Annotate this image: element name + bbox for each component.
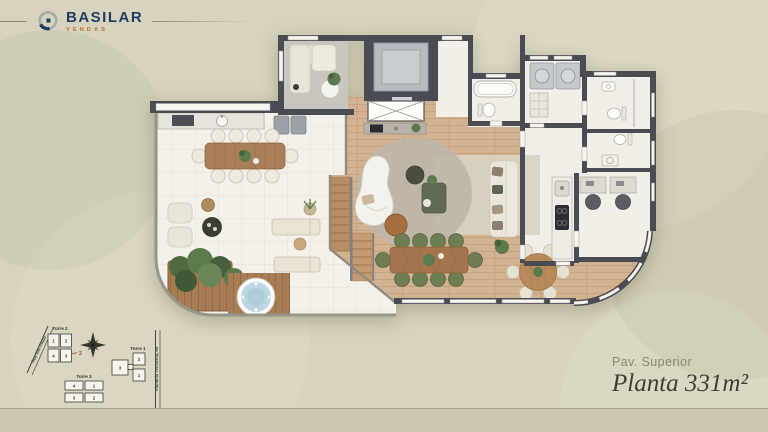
compass-rose-icon <box>80 332 106 358</box>
living-sofa <box>490 161 518 237</box>
office-chair <box>616 195 631 210</box>
page: BASILAR VENDAS <box>0 0 768 432</box>
street-alameda-terracota: Alameda Terracota, 65 <box>154 330 160 408</box>
decorative-rule-left <box>0 21 27 22</box>
tower-name: Torre 1 <box>130 346 146 351</box>
elevator <box>364 35 438 101</box>
kitchen <box>552 177 572 259</box>
plan-title-block: Pav. Superior Planta 331m² <box>612 355 748 398</box>
grill <box>172 115 194 126</box>
plant <box>427 175 437 185</box>
toilet <box>478 103 495 117</box>
pouf <box>385 214 407 236</box>
office-chair <box>586 195 601 210</box>
jacuzzi <box>237 278 275 316</box>
brand-logo-icon <box>36 9 60 33</box>
table-plant <box>423 254 435 266</box>
unit-marker: 2 <box>72 351 82 357</box>
background-circle <box>0 30 170 270</box>
tower-name: Torre 3 <box>76 374 92 379</box>
tower-3: Torre 3 4 1 3 2 <box>65 374 103 402</box>
cooktop <box>555 205 569 230</box>
floor-plan <box>150 35 658 327</box>
side-table-dark <box>203 218 222 237</box>
console-sideboard <box>364 123 426 134</box>
decorative-rule-right <box>152 21 252 22</box>
area-label: Planta 331m² <box>612 370 748 398</box>
foyer-floor <box>436 41 472 117</box>
floor-label: Pav. Superior <box>612 355 748 369</box>
stair-void <box>368 101 424 121</box>
brand-tagline: VENDAS <box>66 27 143 33</box>
site-map: Rua São Paulo Alameda Terracota, 65 Torr… <box>14 318 166 418</box>
street-label: Alameda Terracota, 65 <box>154 346 159 391</box>
brand-name: BASILAR <box>66 10 143 25</box>
lounger-side-table <box>294 238 306 250</box>
svg-text:2: 2 <box>79 351 82 357</box>
side-table-wood <box>202 199 215 212</box>
tower-name: Torre 2 <box>52 326 68 331</box>
gourmet-counter <box>158 113 264 129</box>
plant <box>412 124 421 133</box>
table-plant <box>533 267 543 277</box>
tower-1: Torre 1 2 3 1 <box>112 346 146 381</box>
jacuzzi-deck <box>228 273 290 317</box>
brand-logo: BASILAR VENDAS <box>36 9 143 33</box>
